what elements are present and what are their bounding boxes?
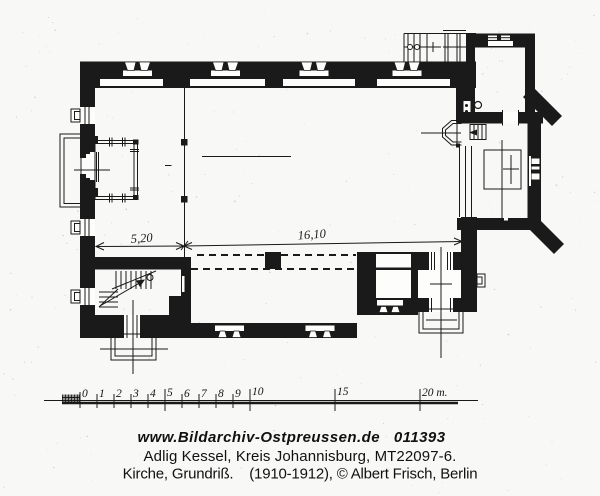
svg-text:2: 2 xyxy=(116,388,122,400)
svg-text:Adlig Kessel, Kreis Johannisbu: Adlig Kessel, Kreis Johannisburg, MT2209… xyxy=(144,448,457,465)
svg-text:6: 6 xyxy=(184,388,190,400)
svg-text:5: 5 xyxy=(167,387,173,399)
svg-text:3: 3 xyxy=(132,388,139,400)
svg-text:5,20: 5,20 xyxy=(130,230,154,246)
svg-text:15: 15 xyxy=(337,386,349,398)
svg-text:20 m.: 20 m. xyxy=(422,387,448,399)
svg-text:0: 0 xyxy=(82,388,88,400)
svg-text:Kirche, Grundriß. (1910-191: Kirche, Grundriß. (1910-1912), © Albert … xyxy=(123,466,478,483)
svg-text:4: 4 xyxy=(150,388,156,400)
svg-text:1: 1 xyxy=(99,388,105,400)
svg-text:9: 9 xyxy=(235,388,241,400)
svg-text:8: 8 xyxy=(218,388,224,400)
svg-text:www.Bildarchiv-Ostpreussen.de: www.Bildarchiv-Ostpreussen.de 011393 xyxy=(137,429,445,446)
svg-text:16,10: 16,10 xyxy=(297,227,327,243)
svg-text:10: 10 xyxy=(252,386,264,398)
